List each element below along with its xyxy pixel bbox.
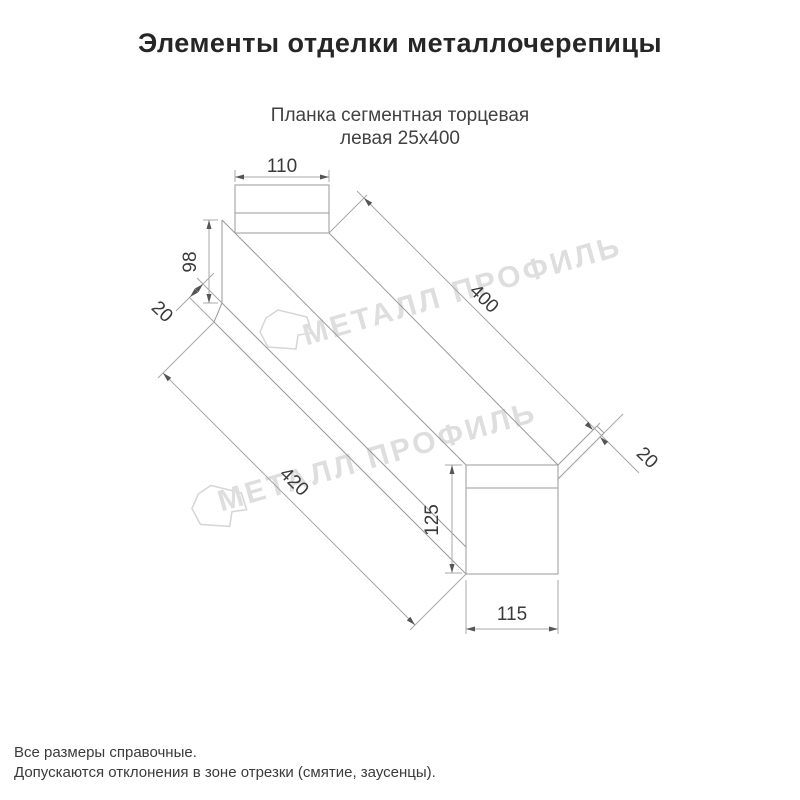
dimension-lines: [158, 170, 639, 634]
dim-label-web-height: 98: [180, 251, 201, 272]
watermark-upper: МЕТАЛЛ ПРОФИЛЬ: [260, 229, 626, 352]
dimension-arrows: [163, 175, 608, 632]
dim-label-top-width: 110: [267, 156, 297, 177]
footnote-line-1: Все размеры справочные.: [14, 744, 197, 761]
footnote-line-2: Допускаются отклонения в зоне отрезки (с…: [14, 764, 436, 781]
dim-label-right-fold: 20: [632, 443, 662, 473]
watermark-text-lower: МЕТАЛЛ ПРОФИЛЬ: [214, 395, 541, 518]
dim-label-bottom-width: 115: [497, 604, 527, 625]
dimension-labels: 110 98 20 400 20 420 125 115: [147, 156, 662, 625]
dim-label-left-fold: 20: [147, 297, 177, 327]
watermark-lower: МЕТАЛЛ ПРОФИЛЬ: [192, 395, 541, 526]
dim-label-right-height: 125: [422, 504, 443, 536]
technical-drawing: МЕТАЛЛ ПРОФИЛЬ МЕТАЛЛ ПРОФИЛЬ: [0, 0, 800, 800]
watermark-text-upper: МЕТАЛЛ ПРОФИЛЬ: [299, 229, 626, 352]
